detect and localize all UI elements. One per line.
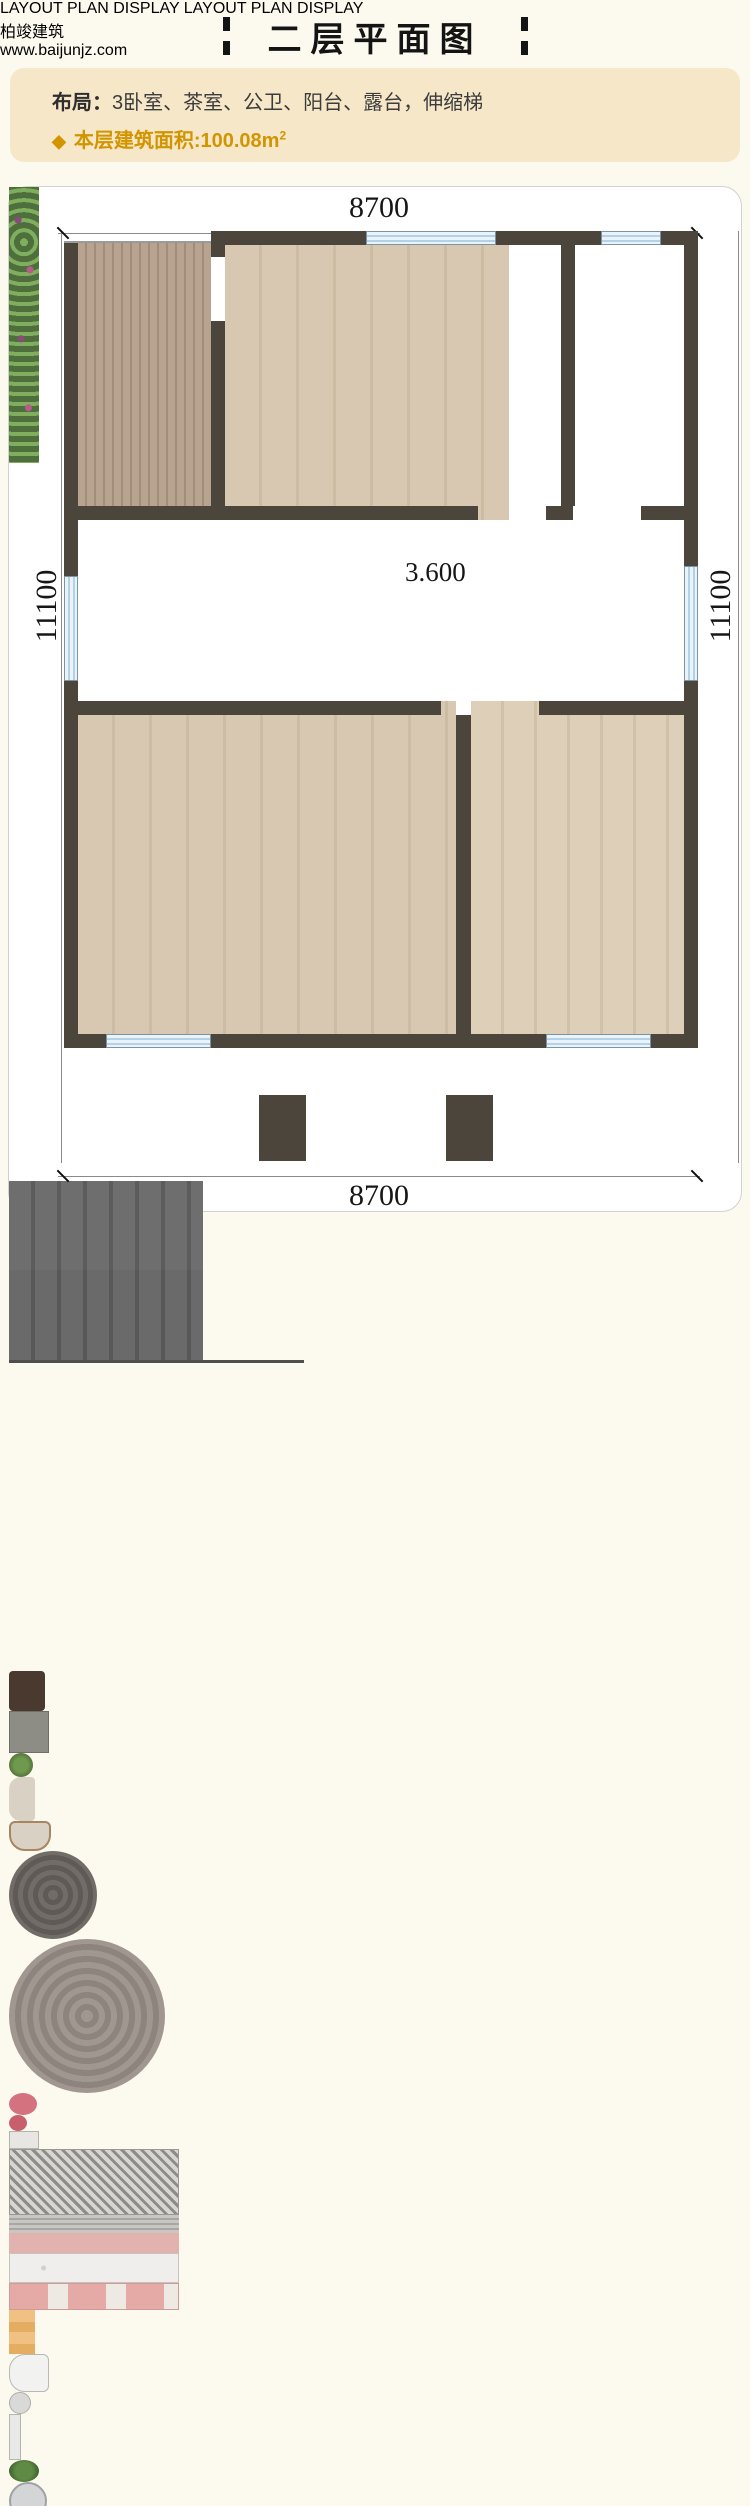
bed-top-band	[9, 2215, 179, 2233]
area-line: ◆本层建筑面积:100.08m2	[52, 124, 286, 153]
title-dash-right-icon	[521, 17, 528, 55]
wall-bathroom-partition	[561, 245, 575, 506]
dim-bottom: 8700	[299, 1179, 459, 1213]
bathroom-sink	[9, 2482, 47, 2506]
window-left	[64, 576, 78, 681]
diamond-icon: ◆	[52, 131, 66, 152]
wall-mid-top-c	[641, 506, 684, 520]
window-top-bathroom	[601, 231, 661, 245]
round-rug-small	[9, 1851, 97, 1939]
layout-value: 3卧室、茶室、公卫、阳台、露台，伸缩梯	[112, 92, 483, 114]
page-header: 二层平面图	[0, 10, 750, 62]
window-top-bedroom	[366, 231, 496, 245]
terrace-floor	[78, 243, 211, 519]
layout-label: 布局：	[52, 92, 112, 114]
stair-treads-upper	[9, 1181, 203, 1270]
terrace-chair-bottom	[9, 1821, 51, 1851]
stair-treads-lower	[9, 1270, 203, 1360]
balcony-wall-right	[446, 1095, 493, 1161]
title-dash-left-icon	[223, 17, 230, 55]
rug-magazine	[9, 2131, 39, 2149]
wall-bedroom-partition	[456, 715, 471, 1034]
dimline-bottom	[58, 1176, 700, 1177]
hall-floor	[9, 1363, 320, 1558]
wall-mid-bottom-b	[539, 701, 684, 715]
wall-mid-bottom-a	[78, 701, 441, 715]
rug-cushion-red	[9, 2115, 27, 2131]
toilet-bowl	[9, 2392, 31, 2414]
window-bottom-left	[106, 1034, 211, 1048]
terrace-chair-right	[9, 1777, 35, 1821]
dim-top: 8700	[299, 191, 459, 225]
elevation-value: 3.600	[405, 557, 515, 588]
toilet-tank	[9, 2414, 21, 2460]
dim-left: 11100	[30, 546, 64, 666]
round-rug-large	[9, 1939, 165, 2093]
info-box: 布局：3卧室、茶室、公卫、阳台、露台，伸缩梯 ◆本层建筑面积:100.08m2	[10, 68, 740, 162]
dimline-left	[61, 231, 62, 1163]
bed-top-pillow-row1	[9, 2253, 179, 2283]
area-sup: 2	[279, 128, 286, 142]
window-bottom-right	[546, 1034, 651, 1048]
bed-top-blanket	[9, 2149, 179, 2215]
terrace-planter	[9, 1671, 45, 1711]
terrace-plants	[9, 187, 39, 463]
wall-terrace-partition-a	[211, 245, 225, 257]
rug-cushion-pink	[9, 2093, 37, 2115]
terrace-top-edge	[64, 241, 211, 243]
terrace-table	[9, 1711, 49, 1753]
bed-top-pink	[9, 2233, 179, 2253]
dim-right: 11100	[704, 546, 738, 666]
area-text: 本层建筑面积:100.08m	[74, 130, 280, 152]
dimline-right	[738, 231, 739, 1163]
bedroom-right-floor	[471, 701, 684, 1034]
wall-terrace-partition-b	[211, 321, 225, 519]
bed-top-pillow-row2	[9, 2283, 179, 2310]
balcony-wall-left	[259, 1095, 306, 1161]
bedroom-top-floor	[225, 245, 509, 520]
bathroom-plant	[9, 2460, 39, 2482]
bedroom-left-floor	[78, 701, 456, 1034]
wall-mid-top-a	[78, 506, 478, 520]
balcony-floor	[9, 1558, 243, 1671]
page-title: 二层平面图	[268, 12, 483, 61]
layout-line: 布局：3卧室、茶室、公卫、阳台、露台，伸缩梯	[52, 86, 483, 115]
window-right	[684, 566, 698, 681]
terrace-table-plant	[9, 1753, 33, 1777]
bathroom-shelf	[9, 2310, 35, 2354]
toilet	[9, 2354, 49, 2392]
wall-mid-top-b	[546, 506, 573, 520]
floorplan-canvas: 8700 8700 11100 11100	[8, 186, 742, 1212]
